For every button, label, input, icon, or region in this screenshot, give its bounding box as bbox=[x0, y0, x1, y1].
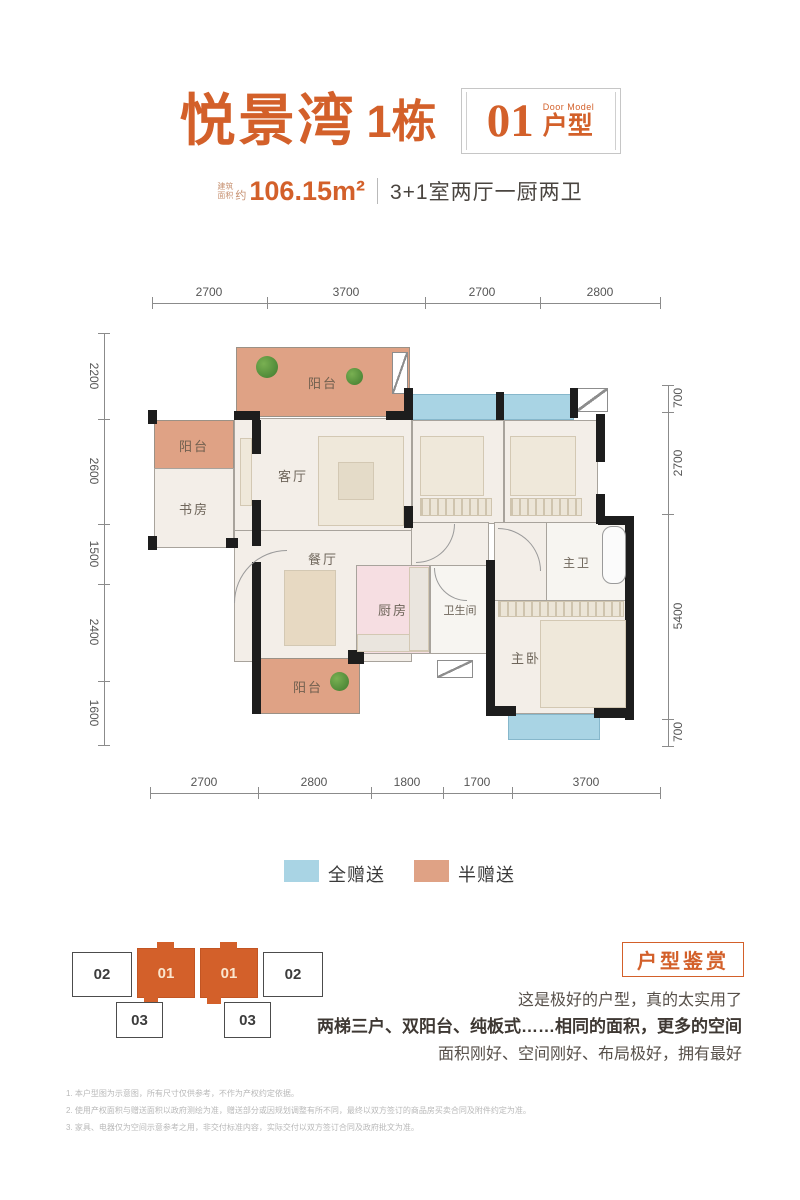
area-row: 建筑 面积 约 106.15m² 3+1室两厅一厨两卫 bbox=[0, 176, 800, 206]
dim-label: 2200 bbox=[87, 354, 101, 398]
keyplan-unit-02-left: 02 bbox=[72, 952, 132, 997]
ac-unit-icon bbox=[437, 660, 473, 678]
legend-label-half-gift: 半赠送 bbox=[458, 861, 515, 887]
area-prefix-line1: 建筑 bbox=[217, 182, 233, 191]
dim-tick bbox=[662, 514, 674, 515]
gift-area-blue-bottom bbox=[508, 714, 600, 740]
tv-cabinet bbox=[240, 438, 252, 506]
ac-unit-icon bbox=[576, 388, 608, 412]
dim-label: 1600 bbox=[87, 691, 101, 735]
floorplan-poster: 悦景湾 1栋 01 Door Model 户型 建筑 面积 约 106.15m²… bbox=[0, 0, 800, 1200]
room-label: 阳台 bbox=[308, 373, 338, 392]
dim-label: 1700 bbox=[440, 775, 514, 789]
keyplan-unit-label: 01 bbox=[158, 965, 175, 982]
room-label: 厨房 bbox=[378, 600, 408, 619]
review-line-2: 两梯三户、双阳台、纯板式……相同的面积，更多的空间 bbox=[317, 1012, 742, 1037]
unit-number: 01 bbox=[487, 98, 534, 145]
dim-tick bbox=[425, 297, 426, 309]
dim-label: 2400 bbox=[87, 610, 101, 654]
project-name: 悦景湾 bbox=[179, 93, 356, 149]
dim-tick bbox=[98, 745, 110, 746]
room-label: 卫生间 bbox=[444, 602, 477, 618]
dim-line bbox=[152, 303, 660, 304]
dim-label: 2800 bbox=[563, 285, 637, 299]
keyplan-unit-01-right: 01 bbox=[200, 948, 258, 998]
wall bbox=[496, 392, 504, 420]
review-line-3: 面积刚好、空间刚好、布局极好，拥有最好 bbox=[438, 1040, 742, 1064]
gift-area-blue-top-1 bbox=[412, 394, 500, 420]
dim-tick bbox=[98, 419, 110, 420]
room-label: 书房 bbox=[179, 499, 209, 518]
wardrobe bbox=[510, 498, 582, 516]
wardrobe bbox=[498, 601, 624, 617]
wall bbox=[148, 536, 157, 550]
wardrobe bbox=[420, 498, 492, 516]
disclaimer-line-3: 3. 家具、电器仅为空间示意参考之用，非交付标准内容，实际交付以双方签订合同及政… bbox=[66, 1122, 419, 1133]
disclaimer-line-2: 2. 使用产权面积与赠送面积以政府测绘为准，赠送部分或因规划调整有所不同，最终以… bbox=[66, 1105, 531, 1116]
wall bbox=[348, 650, 364, 664]
dim-line bbox=[150, 793, 660, 794]
review-title: 户型鉴赏 bbox=[637, 945, 729, 974]
dim-label: 2700 bbox=[445, 285, 519, 299]
dim-tick bbox=[98, 524, 110, 525]
dim-line bbox=[104, 333, 105, 745]
keyplan-unit-02-right: 02 bbox=[263, 952, 323, 997]
dim-tick bbox=[660, 297, 661, 309]
plant-icon bbox=[256, 356, 278, 378]
keyplan-unit-03-left: 03 bbox=[116, 1002, 163, 1038]
plant-icon bbox=[346, 368, 363, 385]
area-prefix: 建筑 面积 bbox=[217, 182, 233, 200]
coffee-table bbox=[338, 462, 374, 500]
unit-labels: Door Model 户型 bbox=[543, 103, 595, 139]
header: 悦景湾 1栋 01 Door Model 户型 bbox=[0, 88, 800, 154]
dim-tick bbox=[540, 297, 541, 309]
wall bbox=[252, 500, 261, 546]
dim-tick bbox=[150, 787, 151, 799]
keyplan-unit-label: 02 bbox=[285, 966, 302, 983]
dim-label: 2800 bbox=[277, 775, 351, 789]
dim-line bbox=[668, 385, 669, 746]
room-label: 客厅 bbox=[278, 466, 308, 485]
bathtub bbox=[602, 526, 626, 584]
dining-table bbox=[284, 570, 336, 646]
wall bbox=[252, 420, 261, 454]
dim-label: 2700 bbox=[167, 775, 241, 789]
review-line-1: 这是极好的户型，真的太实用了 bbox=[518, 986, 742, 1010]
keyplan-unit-01-left: 01 bbox=[137, 948, 195, 998]
dim-label: 700 bbox=[671, 710, 685, 754]
dim-label: 5400 bbox=[671, 594, 685, 638]
keyplan-unit-label: 03 bbox=[131, 1012, 148, 1029]
dim-tick bbox=[98, 333, 110, 334]
dim-label: 2700 bbox=[172, 285, 246, 299]
unit-label-cn: 户型 bbox=[543, 113, 593, 139]
legend-swatch-full-gift bbox=[284, 860, 319, 882]
wall bbox=[625, 516, 634, 720]
master-bed bbox=[540, 620, 626, 708]
dim-label: 1500 bbox=[87, 532, 101, 576]
area-prefix-line2: 面积 bbox=[217, 191, 233, 200]
dim-label: 700 bbox=[671, 376, 685, 420]
area-value: 106.15m² bbox=[249, 178, 365, 205]
keyplan-unit-label: 02 bbox=[94, 966, 111, 983]
plant-icon bbox=[330, 672, 349, 691]
dim-tick bbox=[98, 681, 110, 682]
wall bbox=[404, 388, 413, 420]
dim-label: 3700 bbox=[549, 775, 623, 789]
dim-label: 1800 bbox=[370, 775, 444, 789]
disclaimer-line-1: 1. 本户型图为示意图，所有尺寸仅供参考，不作为产权约定依据。 bbox=[66, 1088, 299, 1099]
wall bbox=[594, 708, 634, 718]
gift-area-blue-top-2 bbox=[502, 394, 574, 420]
legend-label-full-gift: 全赠送 bbox=[328, 861, 385, 887]
dim-tick bbox=[660, 787, 661, 799]
wall bbox=[486, 560, 495, 710]
bed bbox=[510, 436, 576, 496]
keyplan-unit-label: 01 bbox=[221, 965, 238, 982]
bed bbox=[420, 436, 484, 496]
dim-label: 2600 bbox=[87, 449, 101, 493]
room-label: 餐厅 bbox=[308, 531, 338, 568]
keyplan-unit-label: 03 bbox=[239, 1012, 256, 1029]
dim-label: 3700 bbox=[309, 285, 383, 299]
dim-tick bbox=[258, 787, 259, 799]
room-label: 阳台 bbox=[293, 677, 323, 696]
wall bbox=[226, 538, 238, 548]
wall bbox=[570, 388, 578, 418]
dim-label: 2700 bbox=[671, 441, 685, 485]
wall bbox=[596, 414, 605, 462]
room-balcony-left: 阳台 bbox=[154, 420, 234, 470]
legend-swatch-half-gift bbox=[414, 860, 449, 882]
layout-description: 3+1室两厅一厨两卫 bbox=[390, 176, 583, 206]
wall bbox=[404, 506, 413, 528]
area-approx: 约 bbox=[235, 187, 246, 206]
unit-type-box: 01 Door Model 户型 bbox=[461, 88, 621, 154]
room-study: 书房 bbox=[154, 468, 234, 548]
wall bbox=[234, 411, 260, 420]
room-label: 主卫 bbox=[563, 554, 591, 571]
keyplan-unit-03-right: 03 bbox=[224, 1002, 271, 1038]
dim-tick bbox=[267, 297, 268, 309]
wall bbox=[148, 410, 157, 424]
kitchen-counter bbox=[409, 567, 429, 651]
dim-tick bbox=[98, 584, 110, 585]
divider bbox=[377, 178, 378, 204]
building-number: 1栋 bbox=[366, 99, 436, 144]
review-title-box: 户型鉴赏 bbox=[622, 942, 744, 977]
dim-tick bbox=[152, 297, 153, 309]
room-label: 阳台 bbox=[179, 436, 209, 455]
room-label: 主卧 bbox=[495, 648, 541, 667]
